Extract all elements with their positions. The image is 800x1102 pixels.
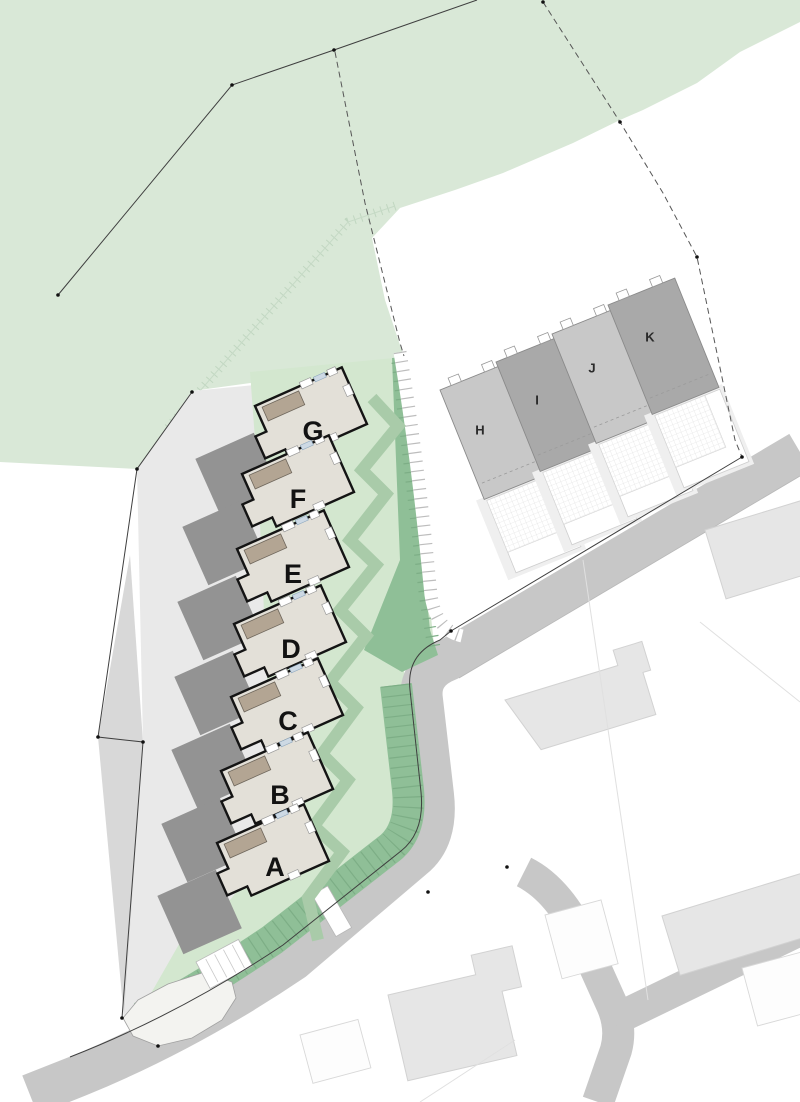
plot-label-k: K [645,330,655,345]
plot-label-f: F [290,484,307,514]
plot-label-j: J [588,361,595,376]
plot-label-c: C [278,706,298,736]
plot-label-h: H [475,423,484,438]
plot-label-g: G [302,416,323,446]
site-plan-page: G F E D C B A H I J K [0,0,800,1102]
plot-label-b: B [270,780,290,810]
plot-label-e: E [284,559,302,589]
plot-label-i: I [535,393,539,408]
plot-label-d: D [281,634,301,664]
plot-label-a: A [265,852,285,882]
site-plan-drawing: G F E D C B A H I J K [0,0,800,1102]
